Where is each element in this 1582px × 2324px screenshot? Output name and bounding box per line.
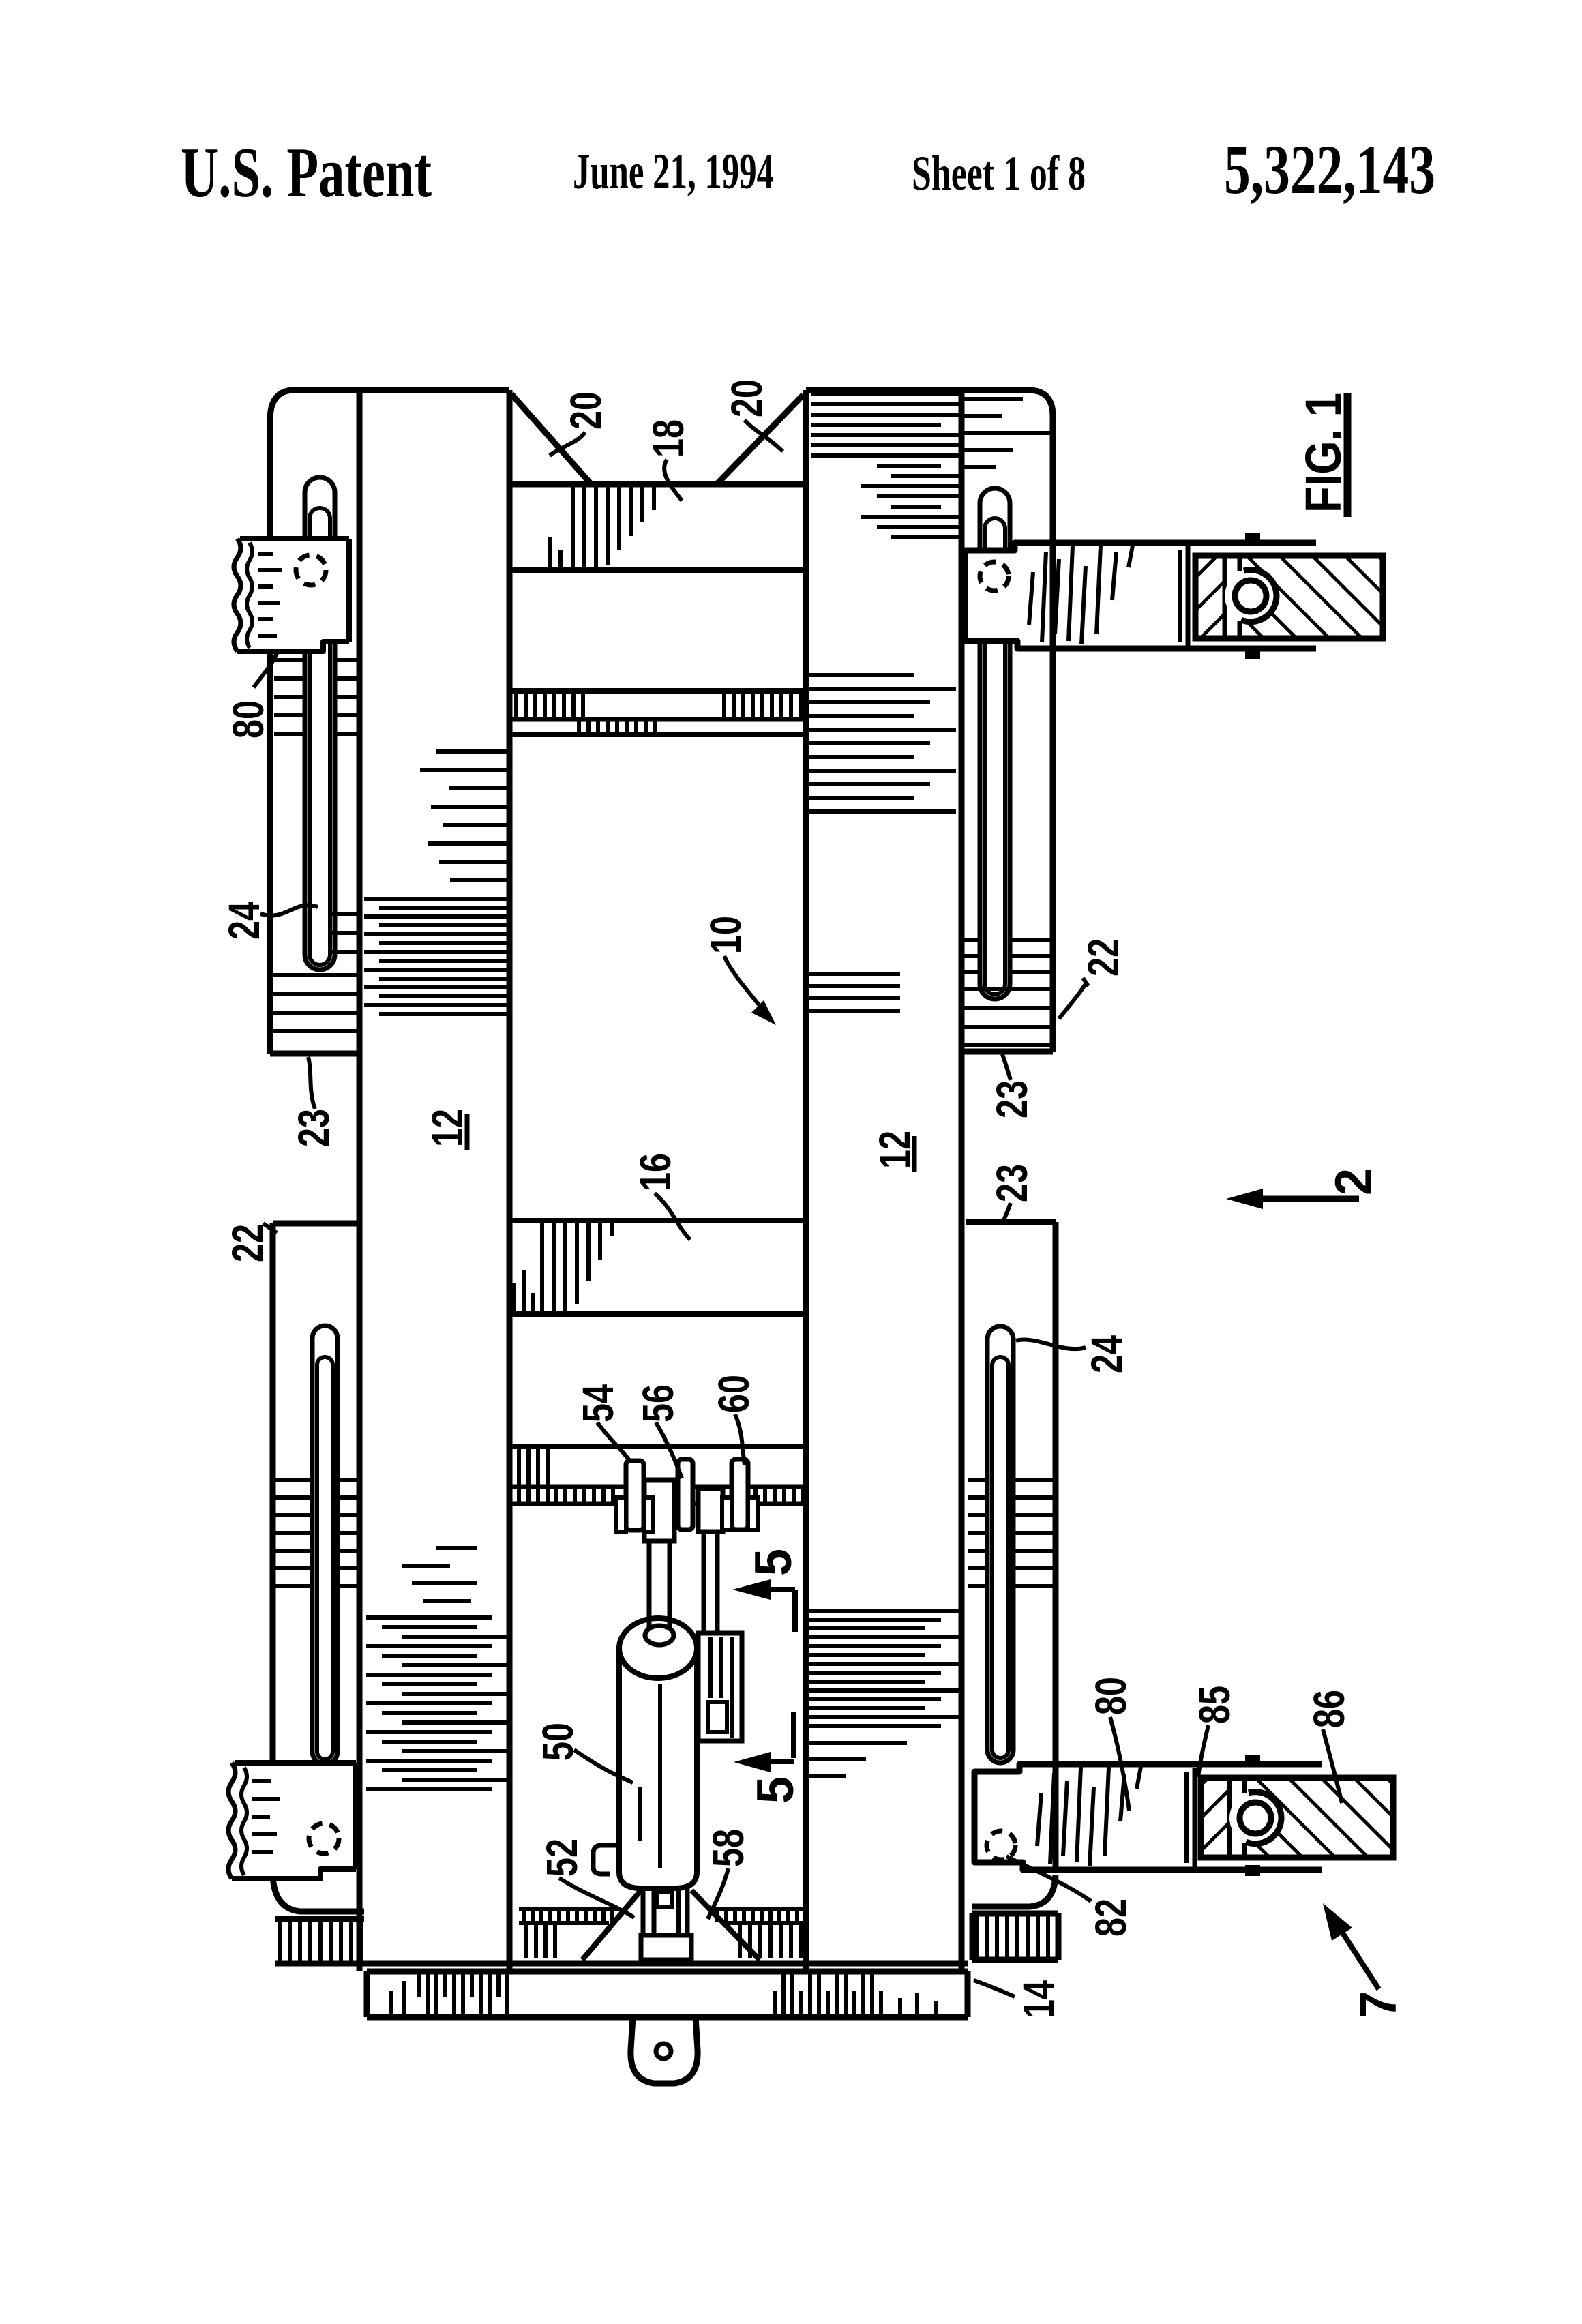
svg-text:12: 12 xyxy=(423,1109,472,1147)
svg-text:14: 14 xyxy=(1014,1980,1063,2018)
svg-text:24: 24 xyxy=(1082,1335,1131,1373)
svg-text:June 21, 1994: June 21, 1994 xyxy=(573,144,774,200)
svg-text:FIG. 1: FIG. 1 xyxy=(1295,393,1352,513)
svg-text:58: 58 xyxy=(704,1829,753,1867)
svg-text:5,322,143: 5,322,143 xyxy=(1224,131,1435,209)
svg-text:23: 23 xyxy=(289,1109,338,1147)
svg-text:54: 54 xyxy=(573,1384,623,1422)
svg-text:82: 82 xyxy=(1086,1898,1135,1937)
svg-text:23: 23 xyxy=(987,1164,1036,1202)
svg-text:50: 50 xyxy=(533,1723,582,1761)
svg-text:60: 60 xyxy=(709,1375,758,1413)
svg-text:22: 22 xyxy=(223,1224,272,1262)
svg-text:56: 56 xyxy=(633,1384,683,1422)
svg-text:18: 18 xyxy=(644,419,693,458)
svg-text:12: 12 xyxy=(870,1131,919,1169)
svg-text:2: 2 xyxy=(1325,1168,1383,1195)
svg-text:U.S. Patent: U.S. Patent xyxy=(181,132,432,212)
svg-text:52: 52 xyxy=(537,1838,586,1877)
svg-text:22: 22 xyxy=(1079,938,1128,977)
svg-text:20: 20 xyxy=(561,391,610,430)
svg-text:Sheet 1 of 8: Sheet 1 of 8 xyxy=(912,146,1086,200)
svg-text:7: 7 xyxy=(1349,1991,1407,2018)
svg-text:23: 23 xyxy=(987,1080,1036,1118)
svg-text:24: 24 xyxy=(220,902,269,940)
svg-text:10: 10 xyxy=(701,916,750,954)
svg-text:86: 86 xyxy=(1304,1690,1354,1728)
svg-text:85: 85 xyxy=(1190,1686,1239,1724)
svg-text:5: 5 xyxy=(747,1776,805,1804)
svg-text:20: 20 xyxy=(722,379,771,417)
svg-text:80: 80 xyxy=(224,700,273,739)
svg-text:16: 16 xyxy=(631,1153,680,1191)
svg-text:5: 5 xyxy=(745,1549,803,1576)
svg-text:80: 80 xyxy=(1086,1677,1135,1715)
